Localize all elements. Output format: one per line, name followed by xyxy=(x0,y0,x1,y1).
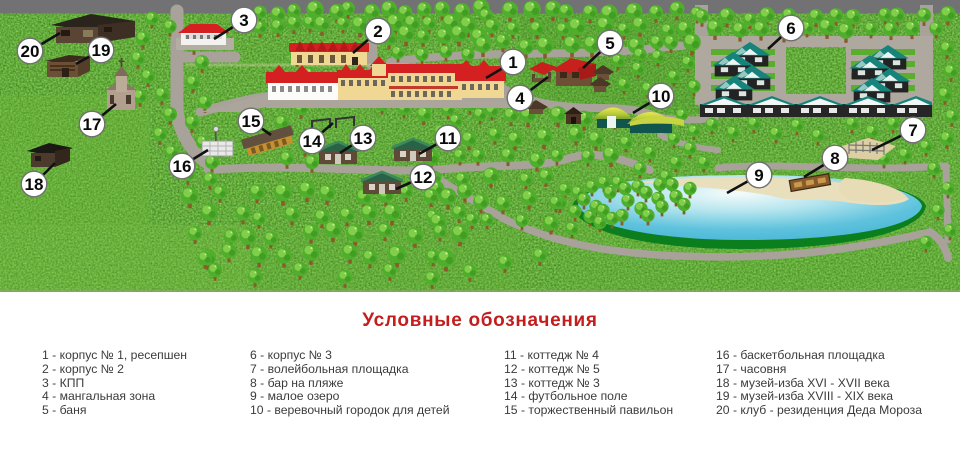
svg-text:3: 3 xyxy=(239,11,248,30)
svg-text:10: 10 xyxy=(652,87,671,106)
svg-text:17: 17 xyxy=(83,115,102,134)
svg-text:11: 11 xyxy=(439,129,457,148)
svg-text:5: 5 xyxy=(605,34,614,53)
svg-text:13: 13 xyxy=(354,129,373,148)
svg-text:8: 8 xyxy=(830,149,839,168)
svg-text:15: 15 xyxy=(242,112,261,131)
svg-text:14: 14 xyxy=(303,132,322,151)
svg-text:2: 2 xyxy=(373,22,382,41)
svg-text:19: 19 xyxy=(92,41,111,60)
svg-text:20: 20 xyxy=(21,42,40,61)
svg-text:1: 1 xyxy=(508,53,517,72)
svg-text:7: 7 xyxy=(908,121,917,140)
svg-text:18: 18 xyxy=(25,175,44,194)
svg-text:4: 4 xyxy=(515,89,525,108)
svg-text:12: 12 xyxy=(414,168,433,187)
svg-text:9: 9 xyxy=(754,166,763,185)
svg-text:16: 16 xyxy=(173,157,192,176)
svg-text:6: 6 xyxy=(786,19,795,38)
